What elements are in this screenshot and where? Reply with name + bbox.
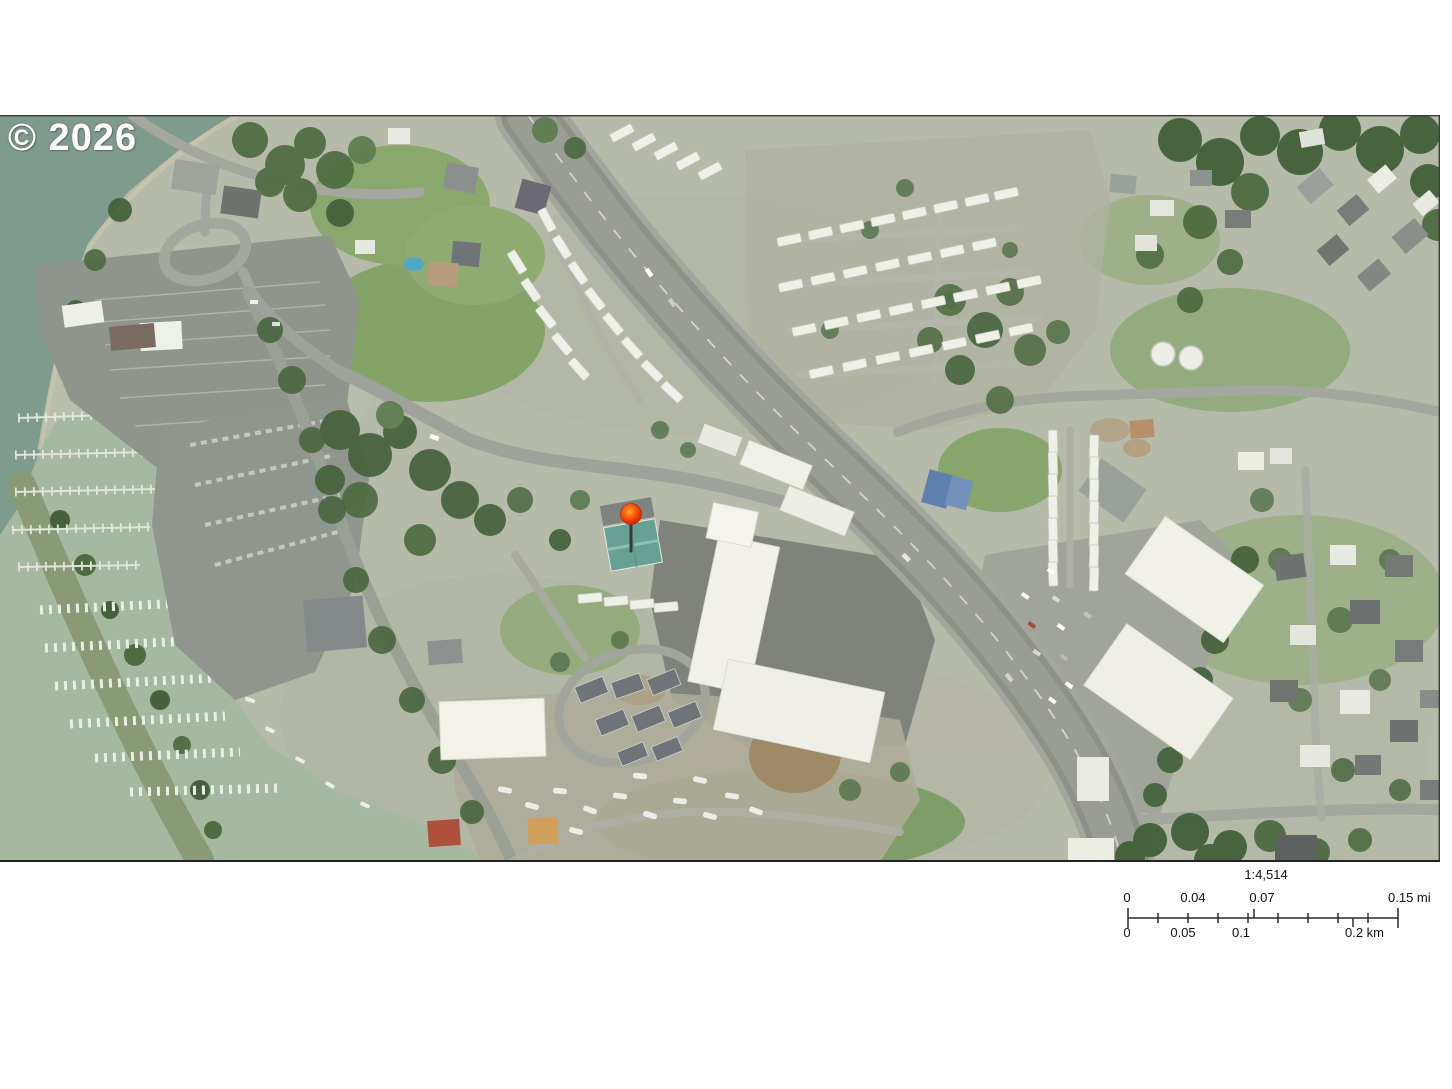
scale-km-tick-0: 0 [1123, 925, 1130, 940]
scale-km-end-label: 0.2 km [1345, 925, 1384, 940]
map-canvas[interactable] [0, 115, 1440, 862]
scale-km-tick-2: 0.1 [1232, 925, 1250, 940]
aerial-map-page: © 2026 1:4,514 0 0.04 0.07 0.15 mi 0 0.0… [0, 0, 1452, 1089]
scale-mi-end-label: 0.15 mi [1388, 890, 1431, 905]
copyright-watermark: © 2026 [8, 117, 137, 160]
scale-mi-tick-1: 0.04 [1180, 890, 1205, 905]
scale-mi-tick-2: 0.07 [1249, 890, 1274, 905]
scale-mi-tick-0: 0 [1123, 890, 1130, 905]
scale-ratio-label: 1:4,514 [1244, 867, 1287, 882]
scale-ruler [1118, 904, 1408, 934]
scale-km-tick-1: 0.05 [1170, 925, 1195, 940]
